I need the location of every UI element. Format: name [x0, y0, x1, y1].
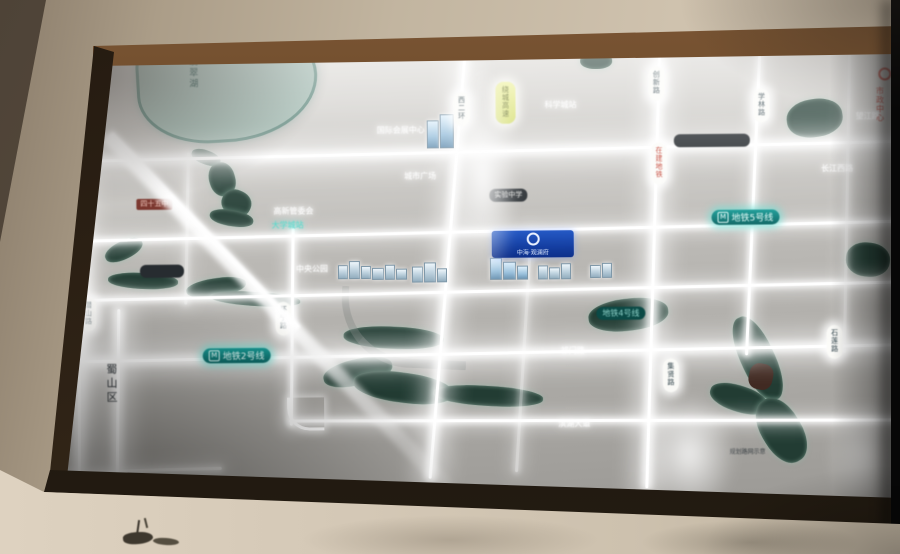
vignette-top-right	[660, 0, 900, 120]
river-water-shape	[433, 383, 544, 410]
vignette-bottom-right	[700, 464, 900, 554]
poi-dark-capsule: 实验中学	[489, 189, 527, 202]
metro-line-label-dark: 地铁4号线	[596, 307, 645, 320]
project-sign-text: 中海·观澜府	[517, 247, 549, 256]
building-icons	[490, 258, 528, 280]
wall-sketch-drawing	[105, 518, 185, 554]
project-logo-icon	[526, 232, 539, 245]
road-vertical	[184, 153, 190, 305]
poi-glow-text: 城市广场	[404, 170, 436, 181]
wall-shadow-soft	[300, 515, 600, 554]
photo-of-illuminated-map-display: 潜山路怀宁路西二环创新路学林路集贤路石莲路绕城高速在建地铁M地铁5号线M地铁2号…	[0, 0, 900, 554]
poi-glow-text: 高新管委会	[273, 205, 313, 216]
lake-shape	[133, 13, 321, 148]
building-icons	[372, 265, 407, 280]
building-icons	[538, 263, 571, 279]
river-water-shape	[844, 241, 891, 279]
poi-glow-text: 长江西路	[821, 163, 853, 174]
metro-icon: M	[209, 350, 220, 361]
poi-glow-text: 滨湖大道	[558, 418, 590, 429]
poi-red-label: 四十五中	[136, 199, 172, 210]
road-name-capsule: 集贤路	[663, 358, 679, 392]
district-name-vertical: 蜀山区	[103, 363, 119, 405]
road-name-capsule: 怀宁路	[275, 302, 291, 336]
road-name-capsule: 西二环	[453, 92, 469, 126]
road-horizontal	[289, 418, 899, 422]
road-vertical	[645, 56, 661, 488]
highway-name-capsule: 绕城高速	[495, 82, 515, 124]
project-location-sign: 中海·观澜府	[492, 230, 574, 258]
metro-icon: M	[717, 212, 728, 223]
poi-glow-text: 祁门路	[561, 345, 585, 356]
building-icons	[427, 114, 454, 148]
building-icons	[590, 263, 612, 278]
metro-station-text: 大学城站	[272, 220, 304, 231]
building-icons	[412, 262, 447, 282]
metro-under-construction-capsule: 在建地铁	[651, 142, 667, 184]
road-corner	[287, 397, 324, 430]
poi-glow-text: 科学城站	[544, 99, 576, 110]
map-note-text: 规划路网示意	[730, 447, 766, 456]
metro-line-label: M地铁2号线	[203, 348, 271, 364]
road-name-capsule: 石莲路	[826, 325, 842, 359]
building-icons	[338, 261, 371, 279]
poi-dark-capsule	[674, 134, 750, 148]
poi-glow-text: 国际会展中心	[377, 124, 425, 135]
poi-glow-text: 中央公园	[296, 263, 328, 274]
metro-line-label: M地铁5号线	[711, 209, 779, 225]
poi-dark-capsule	[140, 265, 184, 278]
